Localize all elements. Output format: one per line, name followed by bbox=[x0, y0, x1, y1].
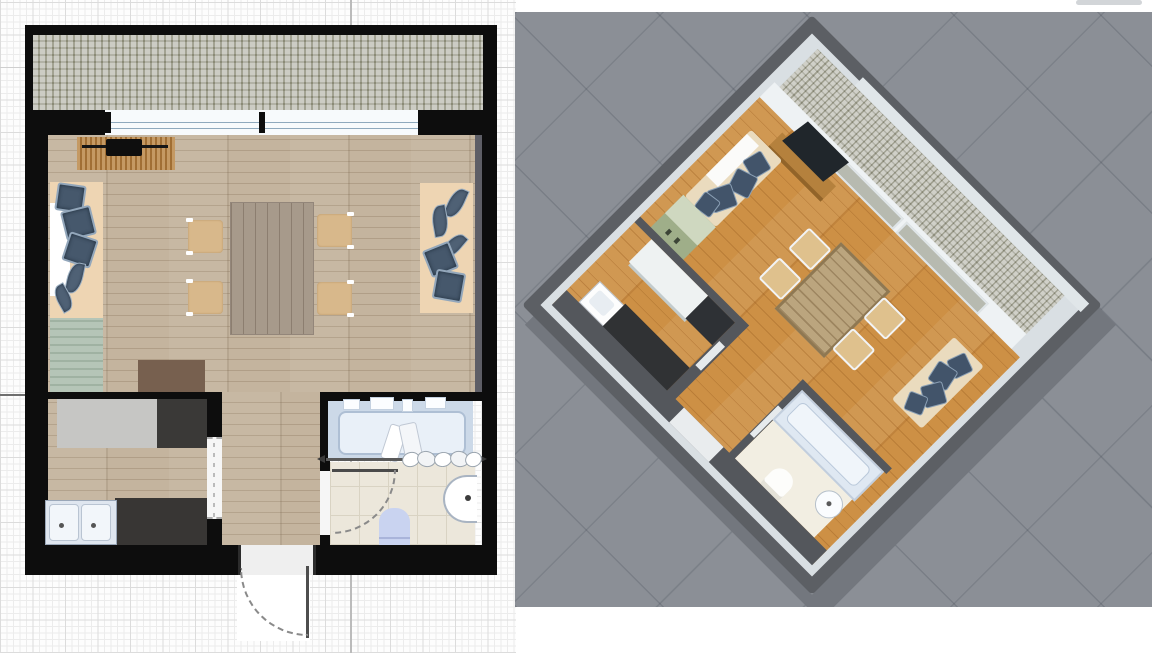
balcony-floor[interactable] bbox=[33, 35, 483, 110]
wall-segment-window-right[interactable] bbox=[418, 110, 482, 135]
bath-shelf-item bbox=[402, 399, 413, 412]
kitchen-counter[interactable] bbox=[57, 399, 157, 448]
kitchen-wall-top[interactable] bbox=[48, 392, 222, 399]
sink-basin bbox=[81, 504, 111, 541]
basin-faucet bbox=[465, 495, 471, 501]
dining-chair[interactable] bbox=[317, 214, 352, 247]
floorplan-2d-canvas[interactable] bbox=[0, 0, 516, 653]
wall-top[interactable] bbox=[25, 25, 497, 35]
rail-arrow-left-icon bbox=[317, 455, 325, 463]
bath-shelf-item bbox=[343, 399, 360, 410]
kitchen-sink[interactable] bbox=[45, 500, 117, 545]
sink-drain bbox=[59, 523, 64, 528]
sink-basin bbox=[49, 504, 79, 541]
coffee-table[interactable] bbox=[138, 360, 205, 392]
bathroom-door-gap[interactable] bbox=[320, 471, 330, 535]
kitchen-counter-dark[interactable] bbox=[115, 498, 207, 550]
render-3d-pane bbox=[516, 0, 1152, 653]
wall-bottom-left[interactable] bbox=[25, 545, 238, 575]
wall-bottom-right[interactable] bbox=[310, 545, 497, 575]
dining-table[interactable] bbox=[230, 202, 314, 335]
render-3d-canvas[interactable] bbox=[515, 12, 1152, 607]
floorplanner-screen bbox=[0, 0, 1152, 653]
dining-chair[interactable] bbox=[188, 281, 223, 314]
scrollbar-horizontal[interactable] bbox=[1076, 0, 1142, 5]
dining-chair[interactable] bbox=[317, 282, 352, 315]
window-frame-mid bbox=[259, 112, 265, 133]
entry-hall-floor[interactable] bbox=[222, 392, 320, 545]
grid-major-hline-tick bbox=[0, 394, 28, 396]
sofa-left[interactable] bbox=[50, 182, 103, 318]
rail-towel bbox=[402, 450, 480, 468]
wall-right-inner-shadow bbox=[475, 135, 482, 392]
tv[interactable] bbox=[106, 139, 142, 156]
toilet[interactable] bbox=[379, 508, 410, 548]
wall-segment-window-left[interactable] bbox=[48, 110, 105, 135]
bath-shelf-item bbox=[425, 397, 446, 409]
apartment-3d[interactable] bbox=[522, 15, 1102, 595]
sofa-right[interactable] bbox=[420, 183, 473, 313]
bath-faucet bbox=[370, 397, 394, 410]
kitchen-doorway[interactable] bbox=[207, 437, 222, 519]
dining-chair[interactable] bbox=[188, 220, 223, 253]
sink-drain bbox=[91, 523, 96, 528]
cushion bbox=[432, 269, 467, 304]
toilet-seat-line bbox=[379, 537, 410, 539]
window-frame-left bbox=[105, 112, 111, 133]
wall-right[interactable] bbox=[482, 25, 497, 575]
sideboard-green[interactable] bbox=[50, 318, 103, 392]
kitchen-cooktop[interactable] bbox=[157, 399, 207, 448]
